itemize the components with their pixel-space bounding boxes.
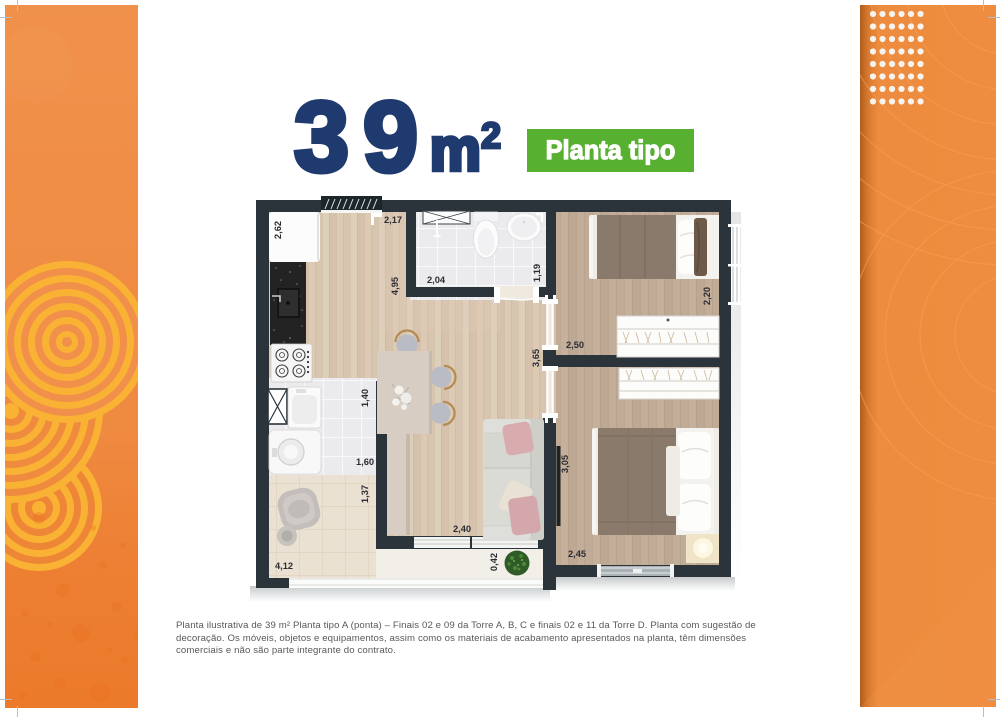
svg-text:3,05: 3,05 [560, 455, 570, 473]
svg-text:1,40: 1,40 [360, 389, 370, 407]
svg-text:2,20: 2,20 [702, 287, 712, 305]
svg-text:1,37: 1,37 [360, 485, 370, 503]
svg-text:3,65: 3,65 [531, 349, 541, 367]
svg-text:2,40: 2,40 [453, 524, 471, 534]
svg-text:2,50: 2,50 [566, 340, 584, 350]
svg-text:2,45: 2,45 [568, 549, 586, 559]
svg-text:1,60: 1,60 [356, 457, 374, 467]
svg-text:0,42: 0,42 [489, 553, 499, 571]
svg-text:2,17: 2,17 [384, 215, 402, 225]
svg-text:2,04: 2,04 [427, 275, 446, 285]
svg-text:4,12: 4,12 [275, 561, 293, 571]
svg-text:2,62: 2,62 [273, 221, 283, 239]
svg-text:1,19: 1,19 [532, 264, 542, 282]
svg-text:4,95: 4,95 [390, 277, 400, 295]
